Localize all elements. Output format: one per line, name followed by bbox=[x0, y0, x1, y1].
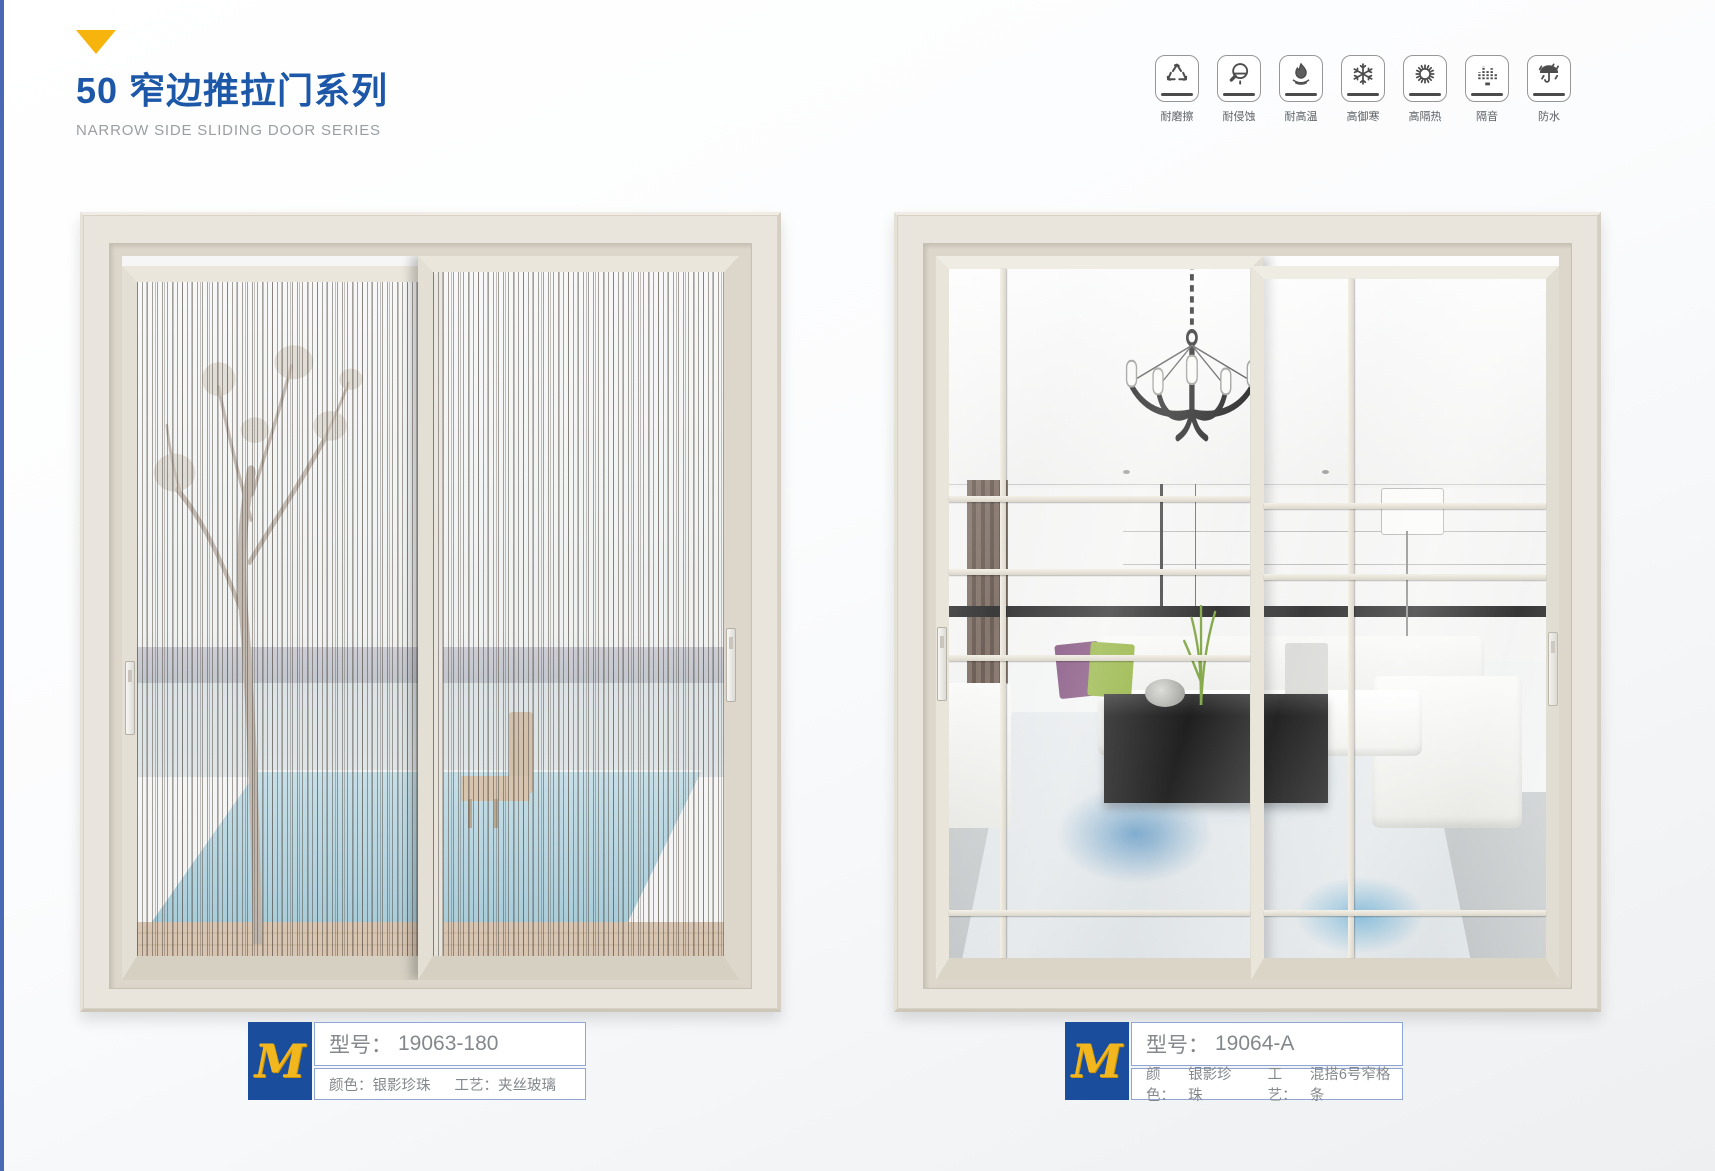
icon-base-bar bbox=[1471, 93, 1503, 97]
craft-value: 混搭6号窄格条 bbox=[1310, 1063, 1402, 1105]
feature-label: 耐高温 bbox=[1279, 108, 1323, 124]
door-jamb bbox=[109, 243, 752, 989]
door-handle bbox=[125, 661, 135, 735]
umbrella-rain-icon bbox=[1527, 55, 1571, 102]
product-photo-door-19064-A bbox=[894, 212, 1601, 1012]
series-title: 50 窄边推拉门系列 bbox=[76, 62, 388, 114]
brand-logo: M bbox=[248, 1022, 312, 1100]
wired-glass bbox=[433, 272, 724, 956]
color-label: 颜色： bbox=[1146, 1063, 1188, 1105]
feature-label: 防水 bbox=[1527, 108, 1571, 124]
sliding-panel-left bbox=[936, 256, 1263, 980]
clear-glass bbox=[1264, 279, 1546, 958]
door-opening bbox=[936, 256, 1559, 980]
product-plate-19063-180: M 型号： 19063-180 颜色： 银影珍珠 工艺： 夹丝玻璃 bbox=[248, 1022, 586, 1100]
icon-base-bar bbox=[1409, 93, 1441, 97]
grid-strip-horizontal bbox=[1264, 574, 1546, 580]
equalizer-icon bbox=[1465, 55, 1509, 102]
sliding-panel-left bbox=[122, 266, 443, 980]
product-plate-19064-A: M 型号： 19064-A 颜色： 银影珍珠 工艺： 混搭6号窄格条 bbox=[1065, 1022, 1403, 1100]
spec-row: 颜色： 银影珍珠 工艺： 混搭6号窄格条 bbox=[1131, 1068, 1403, 1100]
grid-strip-horizontal bbox=[949, 496, 1250, 502]
feature-label: 耐磨擦 bbox=[1155, 108, 1199, 124]
feature-waterproof: 防水 bbox=[1527, 55, 1571, 124]
sliding-panel-right bbox=[418, 256, 739, 980]
sliding-panel-right bbox=[1251, 266, 1559, 980]
triangle-marker-icon bbox=[76, 30, 116, 54]
grid-strip-horizontal bbox=[1264, 503, 1546, 509]
feature-label: 高隔热 bbox=[1403, 108, 1447, 124]
icon-base-bar bbox=[1347, 93, 1379, 97]
snowflake-icon bbox=[1341, 55, 1385, 102]
grid-strip-horizontal bbox=[1264, 910, 1546, 916]
grid-strip-horizontal bbox=[949, 569, 1250, 575]
page-header: 50 窄边推拉门系列 NARROW SIDE SLIDING DOOR SERI… bbox=[76, 30, 388, 139]
door-opening bbox=[122, 256, 739, 980]
grid-strip-vertical bbox=[1348, 279, 1354, 958]
craft-value: 夹丝玻璃 bbox=[498, 1074, 556, 1095]
recycle-icon bbox=[1155, 55, 1199, 102]
color-value: 银影珍珠 bbox=[373, 1074, 431, 1095]
feature-soundproof: 隔音 bbox=[1465, 55, 1509, 124]
grid-strip-horizontal bbox=[949, 910, 1250, 916]
model-label: 型号： bbox=[329, 1029, 392, 1059]
page-left-accent-line bbox=[0, 0, 4, 1171]
color-value: 银影珍珠 bbox=[1188, 1063, 1244, 1105]
wired-glass bbox=[137, 282, 428, 956]
feature-label: 耐侵蚀 bbox=[1217, 108, 1261, 124]
product-photo-door-19063-180 bbox=[80, 212, 781, 1012]
icon-base-bar bbox=[1223, 93, 1255, 97]
feature-cold-proof: 高御寒 bbox=[1341, 55, 1385, 124]
model-row: 型号： 19064-A bbox=[1131, 1022, 1403, 1066]
feature-heat-insulation: 高隔热 bbox=[1403, 55, 1447, 124]
icon-base-bar bbox=[1285, 93, 1317, 97]
brand-logo: M bbox=[1065, 1022, 1129, 1100]
craft-label: 工艺： bbox=[1268, 1063, 1310, 1105]
sun-icon bbox=[1403, 55, 1447, 102]
clear-glass bbox=[949, 269, 1250, 958]
spec-row: 颜色： 银影珍珠 工艺： 夹丝玻璃 bbox=[314, 1068, 586, 1100]
grid-strip-horizontal bbox=[949, 655, 1250, 661]
feature-heat-resistant: 耐高温 bbox=[1279, 55, 1323, 124]
color-label: 颜色： bbox=[329, 1074, 373, 1095]
feature-label: 隔音 bbox=[1465, 108, 1509, 124]
series-subtitle: NARROW SIDE SLIDING DOOR SERIES bbox=[76, 122, 388, 139]
door-handle bbox=[726, 628, 736, 702]
model-value: 19063-180 bbox=[398, 1032, 498, 1056]
craft-label: 工艺： bbox=[455, 1074, 499, 1095]
feature-wear-resistant: 耐磨擦 bbox=[1155, 55, 1199, 124]
feature-corrosion-resistant: 耐侵蚀 bbox=[1217, 55, 1261, 124]
model-row: 型号： 19063-180 bbox=[314, 1022, 586, 1066]
door-handle bbox=[937, 627, 947, 701]
model-value: 19064-A bbox=[1215, 1032, 1294, 1056]
icon-base-bar bbox=[1161, 93, 1193, 97]
flame-icon bbox=[1279, 55, 1323, 102]
icon-base-bar bbox=[1533, 93, 1565, 97]
model-label: 型号： bbox=[1146, 1029, 1209, 1059]
grid-strip-vertical bbox=[1000, 269, 1006, 958]
door-handle bbox=[1548, 632, 1558, 706]
feature-icon-row: 耐磨擦 耐侵蚀 耐高温 bbox=[1155, 55, 1571, 124]
feature-label: 高御寒 bbox=[1341, 108, 1385, 124]
door-jamb bbox=[923, 243, 1572, 989]
corrosion-test-icon bbox=[1217, 55, 1261, 102]
